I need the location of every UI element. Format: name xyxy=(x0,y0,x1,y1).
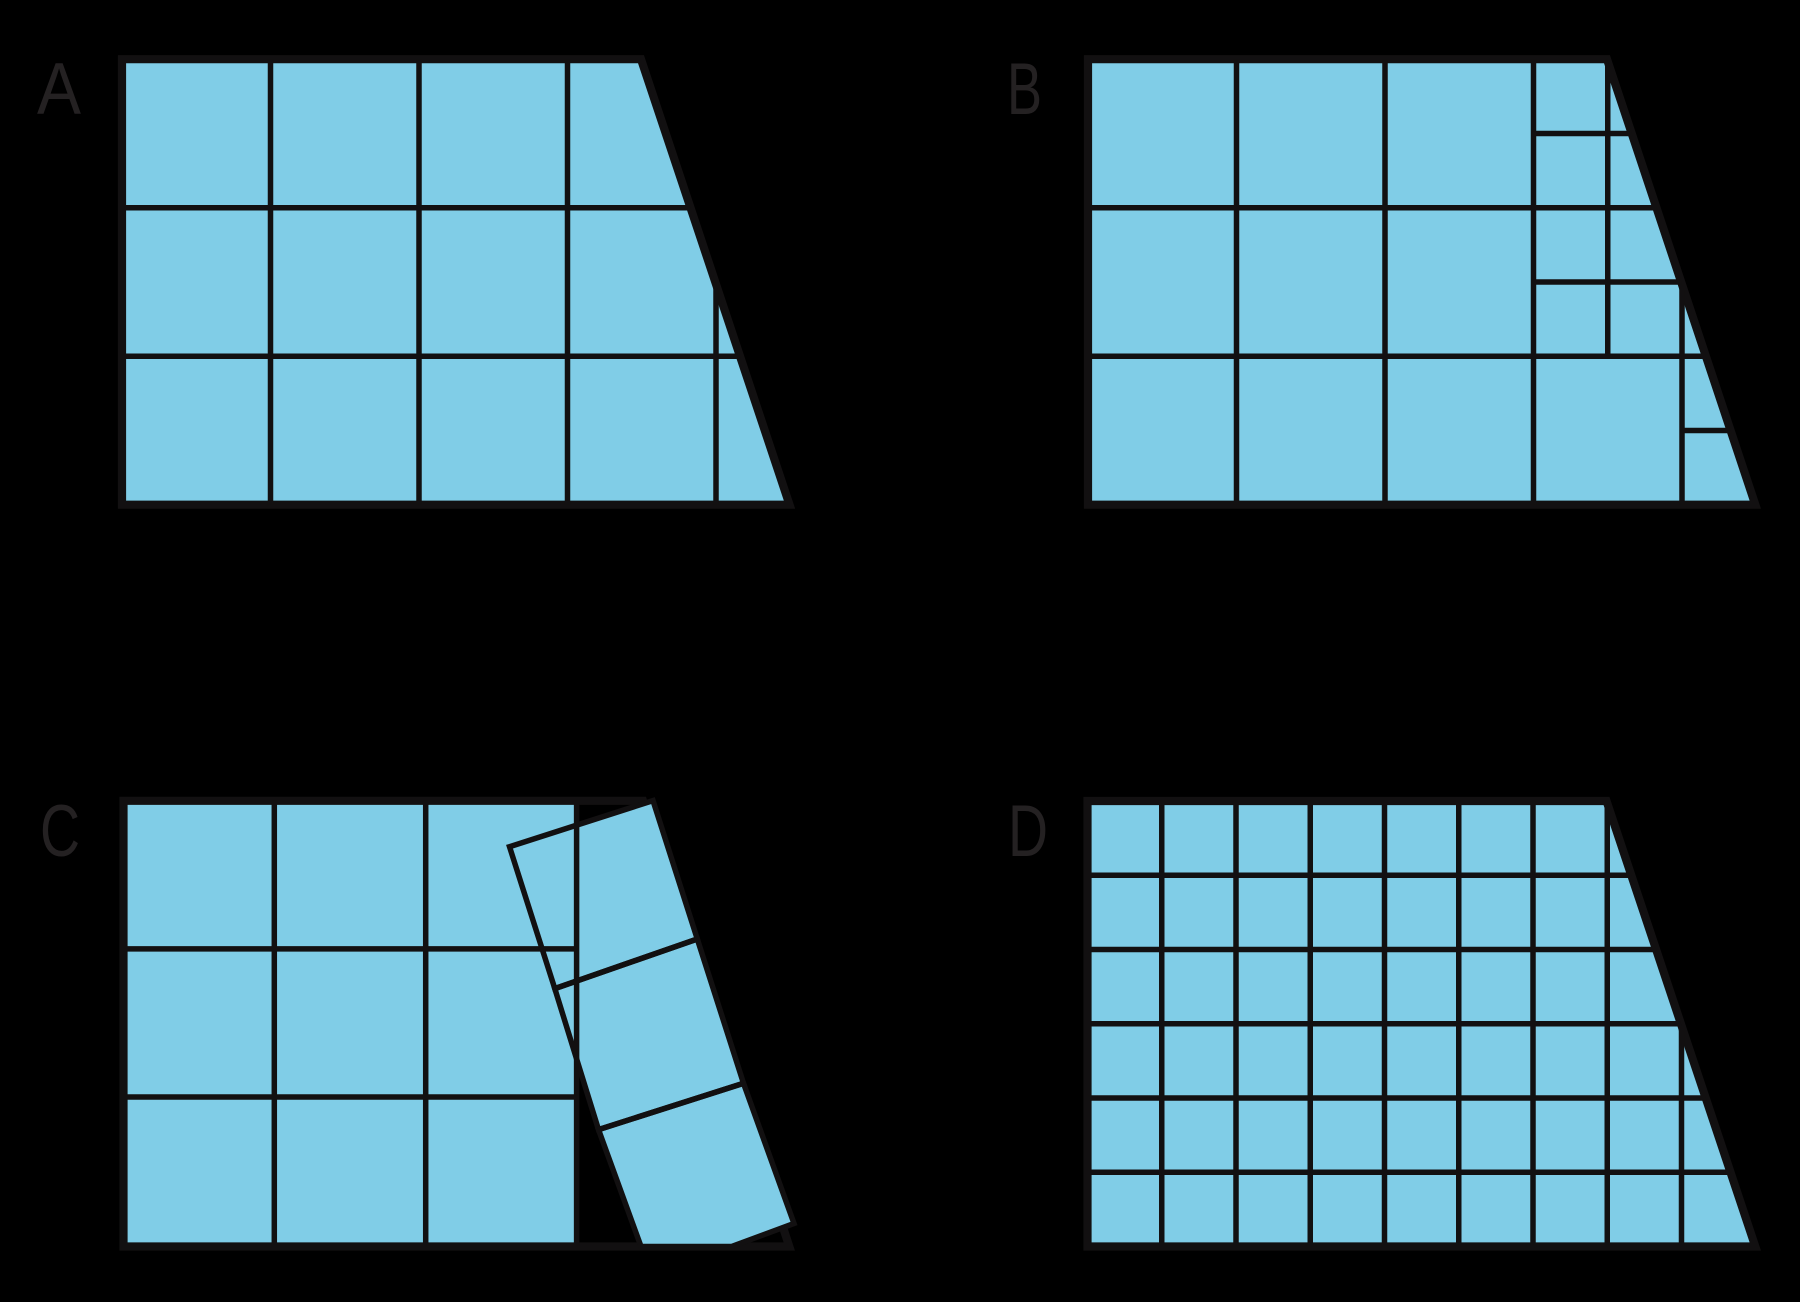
svg-text:D: D xyxy=(1008,791,1048,872)
svg-text:B: B xyxy=(1007,49,1042,130)
svg-text:A: A xyxy=(37,49,81,130)
svg-text:C: C xyxy=(40,791,80,872)
